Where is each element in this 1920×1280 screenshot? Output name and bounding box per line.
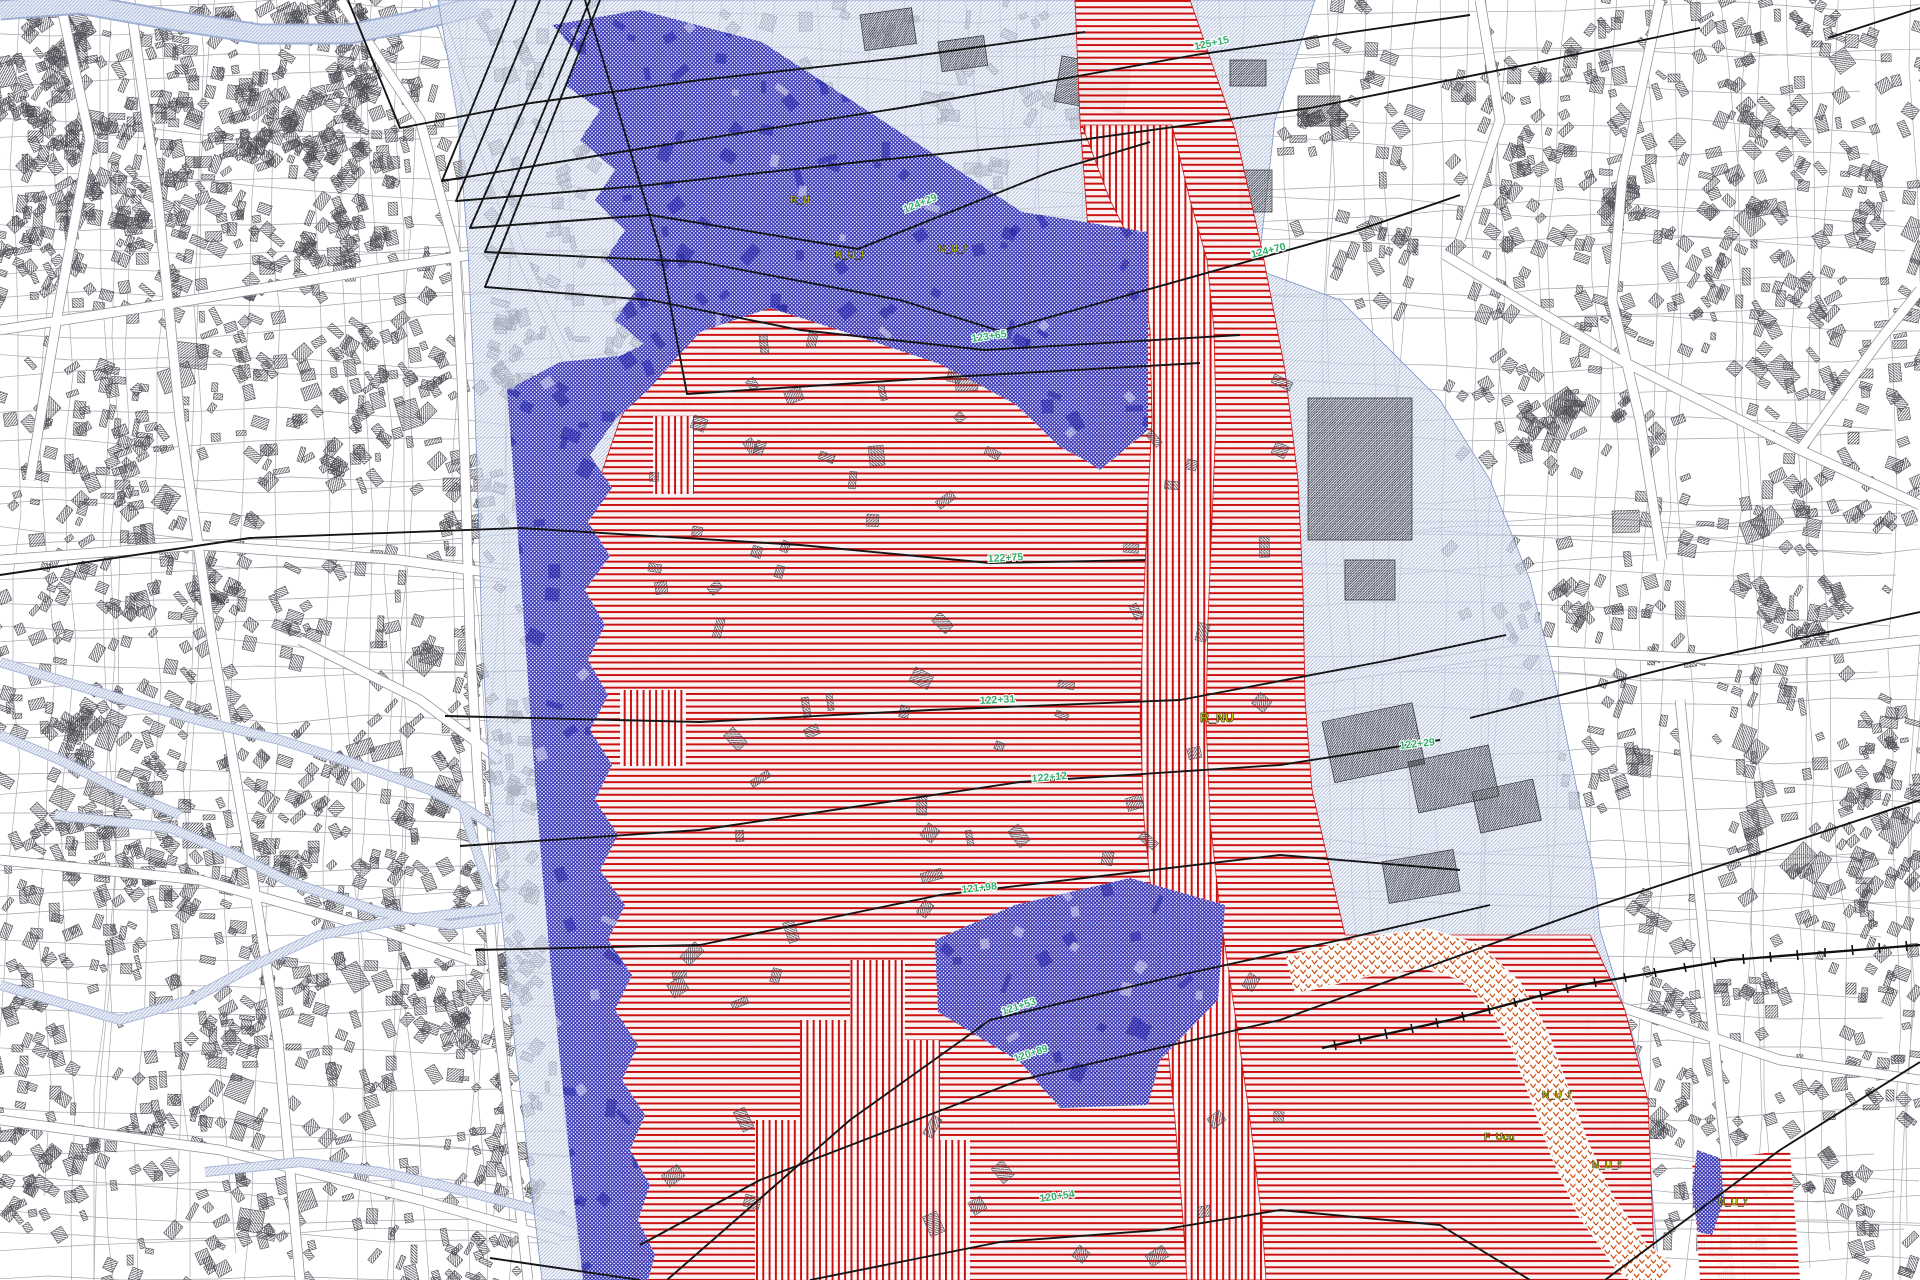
svg-text:122+31: 122+31 [980,693,1016,707]
svg-text:N_U_f: N_U_f [835,250,865,261]
svg-text:N_U_f: N_U_f [938,244,968,255]
svg-text:N_U_f: N_U_f [1592,1160,1622,1171]
svg-text:R_NU: R_NU [1200,711,1234,725]
svg-text:F_Ucu: F_Ucu [1484,1132,1515,1143]
svg-text:N_U_f: N_U_f [1542,1090,1572,1101]
svg-text:122+75: 122+75 [988,551,1024,565]
svg-text:N_U_f: N_U_f [1718,1197,1748,1208]
svg-text:R_U: R_U [790,195,810,206]
